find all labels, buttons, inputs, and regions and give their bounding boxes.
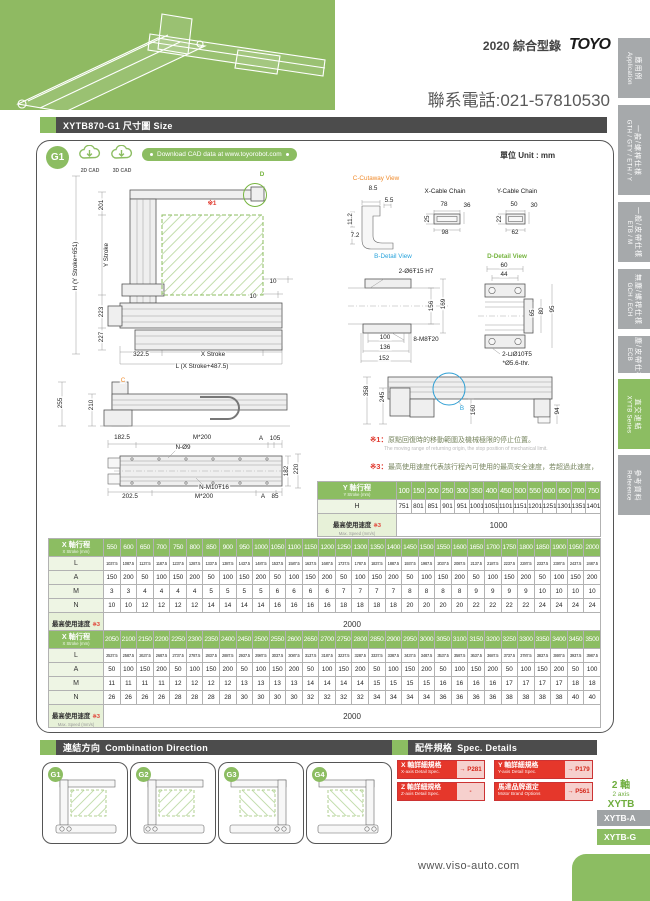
table-cell: 3187.5 xyxy=(319,649,336,663)
column-header: 1550 xyxy=(435,539,452,557)
table-cell: 10 xyxy=(551,585,568,599)
table-cell: 15 xyxy=(385,677,402,691)
table-head-sub: Y Stroke (mm) xyxy=(318,493,396,497)
table-cell: 22 xyxy=(484,599,501,613)
spec-link-y-axis[interactable]: Y 軸詳細規格 Y-axis Detail Spec. → P179 xyxy=(494,760,593,779)
table-cell: 801 xyxy=(411,500,426,514)
table-cell: 200 xyxy=(484,663,501,677)
website-url: www.viso-auto.com xyxy=(418,860,520,872)
table-cell: 18 xyxy=(335,599,352,613)
table-head-sub: X Stroke (mm) xyxy=(49,642,103,646)
column-header: 2350 xyxy=(203,631,220,649)
dimension-label: 62 xyxy=(510,230,519,236)
dimension-label: 95 xyxy=(550,304,556,313)
dimension-label: 105 xyxy=(269,436,282,442)
dimension-label: 44 xyxy=(499,272,508,278)
tab-zh: 無塵/皮帶仕樣 xyxy=(633,336,643,373)
footnote-mark: ※3： xyxy=(370,462,388,471)
combination-option-g3[interactable]: G3 xyxy=(218,762,304,844)
footnote-mark: ※1： xyxy=(370,435,388,444)
tab-en: GTH / GTY / ETH / Y xyxy=(626,119,632,181)
combination-title-zh: 連結方向 xyxy=(63,741,100,754)
y-stroke-table: Y 軸行程Y Stroke (mm)1001502002503003504004… xyxy=(317,481,601,537)
detail-views-drawing: C-Cutaway View8.55.511.27.2X-Cable Chain… xyxy=(348,172,604,372)
table-cell: 8 xyxy=(451,585,468,599)
table-cell: 8 xyxy=(402,585,419,599)
table-cell: 16 xyxy=(468,677,485,691)
table-cell: 1737.5 xyxy=(335,557,352,571)
table-cell: 1537.5 xyxy=(269,557,286,571)
table-cell: 1401 xyxy=(586,500,601,514)
sidebar-tab-gth-gty-eth-y[interactable]: 一般/螺桿仕樣GTH / GTY / ETH / Y xyxy=(618,105,650,195)
combination-option-g2[interactable]: G2 xyxy=(130,762,216,844)
dimension-label: 2-Ø6Ŧ15 H7 xyxy=(398,269,435,275)
table-cell: 13 xyxy=(286,677,303,691)
table-cell: 16 xyxy=(484,677,501,691)
table-cell: 1237.5 xyxy=(170,557,187,571)
column-header: 3350 xyxy=(534,631,551,649)
table-cell: 100 xyxy=(584,663,601,677)
footnote-1: ※1：原點回復時的移動範圍及機械極限的停止位置。 The moving rang… xyxy=(370,429,604,453)
table-cell: 50 xyxy=(302,663,319,677)
column-header: 2650 xyxy=(302,631,319,649)
dimension-label: 245 xyxy=(380,391,386,404)
dimension-label: 2-⊔Ø10Ŧ5 xyxy=(501,352,533,358)
dimension-label: Y-Cable Chain xyxy=(496,189,538,195)
series-tab-xytb-a[interactable]: XYTB-A xyxy=(597,810,650,826)
contact-phone: 聯系電話:021-57810530 xyxy=(428,86,610,111)
sidebar-tab-reference[interactable]: 參考資料Reference xyxy=(618,455,650,515)
table-cell: 200 xyxy=(286,663,303,677)
column-header: 3300 xyxy=(518,631,535,649)
series-axis-block: 2 軸 2 axis XYTB xyxy=(598,776,644,810)
table-cell: 150 xyxy=(567,571,584,585)
table-cell: 851 xyxy=(426,500,441,514)
front-view-drawing: D※1H (Y Stroke+651)201Y Stroke2232271010… xyxy=(52,166,352,374)
table-cell: 32 xyxy=(335,691,352,705)
column-header: 2100 xyxy=(120,631,137,649)
g1-badge: G1 xyxy=(48,767,63,782)
dimension-label: 98 xyxy=(440,230,449,236)
dimension-label: 50 xyxy=(509,202,518,208)
tab-en: ETB / M xyxy=(626,220,632,244)
table-cell: 2937.5 xyxy=(236,649,253,663)
table-cell: 15 xyxy=(418,677,435,691)
column-header: 1500 xyxy=(418,539,435,557)
dimension-label: N-M10Ŧ16 xyxy=(198,485,230,491)
table-head-label: X 軸行程X Stroke (mm) xyxy=(49,631,104,649)
table-cell: 10 xyxy=(534,585,551,599)
table-cell: 1387.5 xyxy=(219,557,236,571)
table-cell: 1351 xyxy=(571,500,586,514)
table-cell: 2687.5 xyxy=(153,649,170,663)
table-cell: 2137.5 xyxy=(468,557,485,571)
table-cell: 12 xyxy=(186,599,203,613)
table-cell: 100 xyxy=(319,663,336,677)
column-header: 1050 xyxy=(269,539,286,557)
table-cell: 7 xyxy=(385,585,402,599)
tab-zh: 參考資料 xyxy=(633,469,643,501)
speed-label-en: Max. Speed (mm/s) xyxy=(318,532,396,536)
table-cell: 6 xyxy=(269,585,286,599)
tab-zh: 直交連結 xyxy=(633,398,643,430)
column-header: 1850 xyxy=(534,539,551,557)
table-cell: 17 xyxy=(551,677,568,691)
table-cell: 3437.5 xyxy=(402,649,419,663)
dimension-label: 5.5 xyxy=(384,198,395,204)
column-header: 1750 xyxy=(501,539,518,557)
dimension-label: 227 xyxy=(99,331,105,344)
table-cell: 1037.5 xyxy=(104,557,121,571)
table-cell: 2037.5 xyxy=(435,557,452,571)
table-cell: 8 xyxy=(418,585,435,599)
table-cell: 200 xyxy=(451,571,468,585)
table-cell: 20 xyxy=(402,599,419,613)
table-cell: 12 xyxy=(203,677,220,691)
column-header: 1000 xyxy=(253,539,270,557)
dimension-label: 94 xyxy=(555,406,561,415)
table-cell: 5 xyxy=(253,585,270,599)
column-header: 350 xyxy=(469,482,484,500)
dimension-label: X-Cable Chain xyxy=(424,189,467,195)
column-header: 3250 xyxy=(501,631,518,649)
dimension-label: 65 xyxy=(530,308,536,317)
table-cell: 5 xyxy=(236,585,253,599)
x-stroke-table-1: X 軸行程X Stroke (mm)5506006507007508008509… xyxy=(48,538,601,636)
table-cell: 150 xyxy=(468,663,485,677)
series-name: XYTB xyxy=(598,799,644,810)
table-cell: 50 xyxy=(170,663,187,677)
table-cell: 3 xyxy=(104,585,121,599)
dimension-label: 8.5 xyxy=(368,186,379,192)
table-cell: 22 xyxy=(518,599,535,613)
tab-en: Application xyxy=(626,52,632,85)
column-header: 3400 xyxy=(551,631,568,649)
table-cell: 14 xyxy=(352,677,369,691)
table-cell: 13 xyxy=(236,677,253,691)
spec-motor-page-ref: → P561 xyxy=(565,783,592,800)
table-cell: 28 xyxy=(203,691,220,705)
table-cell: 3487.5 xyxy=(418,649,435,663)
column-header: 1700 xyxy=(484,539,501,557)
table-cell: 28 xyxy=(186,691,203,705)
table-cell: 26 xyxy=(153,691,170,705)
column-header: 700 xyxy=(153,539,170,557)
table-cell: 150 xyxy=(236,571,253,585)
table-cell: 2837.5 xyxy=(203,649,220,663)
sidebar-tab-ecb[interactable]: 無塵/皮帶仕樣ECB xyxy=(618,336,650,373)
table-cell: 1051 xyxy=(484,500,499,514)
table-cell: 3387.5 xyxy=(385,649,402,663)
dimension-label: B xyxy=(459,406,465,412)
dimension-label: 30 xyxy=(529,203,538,209)
table-cell: 150 xyxy=(269,663,286,677)
dimension-label: M*200 xyxy=(192,435,212,441)
dimension-label: 169 xyxy=(441,298,447,311)
table-cell: 50 xyxy=(104,663,121,677)
dimension-label: X Stroke xyxy=(200,352,226,358)
dimension-label: ※1 xyxy=(207,201,218,207)
speed-label-en: Max. Speed (mm/s) xyxy=(49,723,103,727)
table-cell: 36 xyxy=(484,691,501,705)
column-header: 1400 xyxy=(385,539,402,557)
dimension-label: M*200 xyxy=(194,494,214,500)
sidebar-tab-etb-m[interactable]: 一般/皮帶仕樣ETB / M xyxy=(618,202,650,262)
table-cell: 100 xyxy=(120,663,137,677)
table-cell: 16 xyxy=(451,677,468,691)
spec-table: Y 軸行程Y Stroke (mm)1001502002503003504004… xyxy=(317,481,601,537)
table-cell: 38 xyxy=(534,691,551,705)
table-cell: 14 xyxy=(219,599,236,613)
speed-label: 最高使用速度※3Max. Speed (mm/s) xyxy=(49,705,104,728)
table-cell: 150 xyxy=(203,663,220,677)
table-cell: 6 xyxy=(286,585,303,599)
sidebar-tab-xytb-series[interactable]: 直交連結XYTB Series xyxy=(618,379,650,449)
table-cell: 200 xyxy=(418,663,435,677)
speed-footnote-mark: ※3 xyxy=(373,523,381,529)
tab-zh: 無塵/螺桿仕樣 xyxy=(633,274,643,325)
series-tab-xytb-g[interactable]: XYTB-G xyxy=(597,829,650,845)
column-header: 700 xyxy=(571,482,586,500)
tab-zh: 應用例 xyxy=(633,56,643,80)
dimension-label: B-Detail View xyxy=(373,254,413,260)
column-header: 2750 xyxy=(335,631,352,649)
table-cell: 200 xyxy=(120,571,137,585)
column-header: 1300 xyxy=(352,539,369,557)
tab-en: GCH / ECH xyxy=(626,282,632,316)
table-cell: 30 xyxy=(253,691,270,705)
table-cell: 2587.5 xyxy=(120,649,137,663)
column-header: 250 xyxy=(440,482,455,500)
table-cell: 2537.5 xyxy=(104,649,121,663)
dimension-label: 223 xyxy=(99,306,105,319)
spec-table: X 軸行程X Stroke (mm)2050210021502200225023… xyxy=(48,630,601,728)
column-header: 1650 xyxy=(468,539,485,557)
column-header: 1950 xyxy=(567,539,584,557)
dimension-label: 36 xyxy=(462,203,471,209)
spec-title-en: Spec. Details xyxy=(457,743,517,753)
edition-text: 2020 綜合型錄 xyxy=(483,37,561,54)
table-cell: 11 xyxy=(137,677,154,691)
combination-option-g1[interactable]: G1 xyxy=(42,762,128,844)
spec-link-motor-brand[interactable]: 馬達品牌選定 Motor Brand Options → P561 xyxy=(494,782,593,801)
table-cell: 12 xyxy=(186,677,203,691)
table-cell: 5 xyxy=(203,585,220,599)
table-cell: 9 xyxy=(468,585,485,599)
table-cell: 7 xyxy=(369,585,386,599)
dimension-label: D-Detail View xyxy=(486,254,528,260)
column-header: 100 xyxy=(397,482,412,500)
speed-footnote-mark: ※3 xyxy=(92,622,100,628)
table-cell: 17 xyxy=(518,677,535,691)
table-cell: 3837.5 xyxy=(534,649,551,663)
table-cell: 3887.5 xyxy=(551,649,568,663)
column-header: 800 xyxy=(186,539,203,557)
table-head-label: X 軸行程X Stroke (mm) xyxy=(49,539,104,557)
table-cell: 20 xyxy=(451,599,468,613)
table-cell: 3587.5 xyxy=(451,649,468,663)
column-header: 600 xyxy=(120,539,137,557)
table-cell: 18 xyxy=(352,599,369,613)
table-cell: 24 xyxy=(534,599,551,613)
table-cell: 9 xyxy=(501,585,518,599)
table-cell: 150 xyxy=(501,571,518,585)
column-header: 900 xyxy=(219,539,236,557)
table-cell: 3737.5 xyxy=(501,649,518,663)
table-cell: 200 xyxy=(219,663,236,677)
dimension-label: D xyxy=(259,172,266,178)
speed-value: 2000 xyxy=(104,705,601,728)
column-header: 3200 xyxy=(484,631,501,649)
table-cell: 200 xyxy=(186,571,203,585)
table-head-sub: X Stroke (mm) xyxy=(49,550,103,554)
cad-download-link[interactable]: Download CAD data at www.toyorobot.com xyxy=(142,148,297,161)
table-cell: 1101 xyxy=(498,500,513,514)
table-cell: 951 xyxy=(455,500,470,514)
table-cell: 17 xyxy=(501,677,518,691)
table-cell: 200 xyxy=(253,571,270,585)
column-header: 2000 xyxy=(584,539,601,557)
dimension-label: 7.2 xyxy=(350,233,361,239)
speed-label: 最高使用速度※3Max. Speed (mm/s) xyxy=(318,514,397,537)
table-cell: 200 xyxy=(319,571,336,585)
title-accent-square xyxy=(40,117,56,133)
table-cell: 13 xyxy=(269,677,286,691)
dimension-label: L (X Stroke+487.5) xyxy=(175,364,230,370)
table-cell: 2437.5 xyxy=(567,557,584,571)
table-cell: 15 xyxy=(402,677,419,691)
tab-zh: 一般/螺桿仕樣 xyxy=(633,125,643,176)
speed-value: 1000 xyxy=(397,514,601,537)
table-cell: 26 xyxy=(137,691,154,705)
spec-link-z-axis[interactable]: Z 軸詳細規格 Z-axis Detail Spec. - xyxy=(397,782,485,801)
table-cell: 11 xyxy=(104,677,121,691)
table-cell: 12 xyxy=(170,599,187,613)
x-stroke-table-2: X 軸行程X Stroke (mm)2050210021502200225023… xyxy=(48,630,601,728)
table-cell: 100 xyxy=(153,571,170,585)
table-cell: 12 xyxy=(153,599,170,613)
table-cell: 1187.5 xyxy=(153,557,170,571)
table-cell: 1787.5 xyxy=(352,557,369,571)
table-cell: 4 xyxy=(153,585,170,599)
table-cell: 200 xyxy=(551,663,568,677)
dimension-label: 25 xyxy=(425,214,431,223)
tab-en: XYTB Series xyxy=(626,395,632,433)
column-header: 300 xyxy=(455,482,470,500)
table-cell: 12 xyxy=(170,677,187,691)
table-cell: 200 xyxy=(385,571,402,585)
table-cell: 36 xyxy=(435,691,452,705)
dimension-label: C xyxy=(120,378,127,384)
combination-accent-square xyxy=(40,740,56,755)
table-cell: 24 xyxy=(584,599,601,613)
column-header: 3100 xyxy=(451,631,468,649)
table-cell: 1337.5 xyxy=(203,557,220,571)
table-cell: 2987.5 xyxy=(253,649,270,663)
column-header: 450 xyxy=(498,482,513,500)
table-cell: 28 xyxy=(170,691,187,705)
column-header: 1200 xyxy=(319,539,336,557)
table-cell: 150 xyxy=(369,571,386,585)
tab-en: ECB xyxy=(626,348,632,361)
column-header: 2400 xyxy=(219,631,236,649)
table-cell: 751 xyxy=(397,500,412,514)
tab-en: Reference xyxy=(626,470,632,500)
column-header: 400 xyxy=(484,482,499,500)
row-label: H xyxy=(318,500,397,514)
table-cell: 100 xyxy=(219,571,236,585)
column-header: 2800 xyxy=(352,631,369,649)
table-cell: 3987.5 xyxy=(584,649,601,663)
spec-y-page-ref: → P179 xyxy=(565,761,592,778)
table-cell: 22 xyxy=(501,599,518,613)
table-cell: 30 xyxy=(236,691,253,705)
table-cell: 50 xyxy=(435,663,452,677)
unit-label: 單位 Unit : mm xyxy=(500,150,555,161)
cloud-download-icon xyxy=(110,145,134,167)
row-label: L xyxy=(49,557,104,571)
column-header: 150 xyxy=(411,482,426,500)
combination-option-g4[interactable]: G4 xyxy=(306,762,392,844)
table-head-label: Y 軸行程Y Stroke (mm) xyxy=(318,482,397,500)
table-cell: 100 xyxy=(352,571,369,585)
brand-logo: TOYO xyxy=(569,36,610,54)
dimension-label: 22 xyxy=(497,214,503,223)
spec-link-x-axis[interactable]: X 軸詳細規格 X-axis Detail Spec. → P281 xyxy=(397,760,485,779)
table-cell: 20 xyxy=(435,599,452,613)
dimension-label: 85 xyxy=(270,494,279,500)
table-cell: 32 xyxy=(319,691,336,705)
column-header: 1900 xyxy=(551,539,568,557)
dimension-label: 11.2 xyxy=(348,212,354,226)
table-cell: 2087.5 xyxy=(451,557,468,571)
table-cell: 50 xyxy=(567,663,584,677)
table-cell: 50 xyxy=(203,571,220,585)
table-cell: 4 xyxy=(186,585,203,599)
column-header: 2950 xyxy=(402,631,419,649)
dimension-label: 78 xyxy=(439,202,448,208)
dimension-label: Y Stroke xyxy=(104,242,110,268)
table-cell: 18 xyxy=(567,677,584,691)
spec-title-bar: 配件規格 Spec. Details xyxy=(408,740,597,755)
table-cell: 17 xyxy=(534,677,551,691)
table-cell: 2487.5 xyxy=(584,557,601,571)
g4-badge: G4 xyxy=(312,767,327,782)
table-cell: 3137.5 xyxy=(302,649,319,663)
column-header: 3500 xyxy=(584,631,601,649)
dimension-label: C-Cutaway View xyxy=(352,176,400,182)
table-cell: 20 xyxy=(418,599,435,613)
table-cell: 4 xyxy=(170,585,187,599)
dimension-label: 100 xyxy=(379,335,392,341)
table-cell: 1987.5 xyxy=(418,557,435,571)
table-cell: 38 xyxy=(518,691,535,705)
table-cell: 34 xyxy=(369,691,386,705)
table-cell: 16 xyxy=(269,599,286,613)
hero-product-illustration xyxy=(0,0,335,110)
table-cell: 3687.5 xyxy=(484,649,501,663)
table-cell: 24 xyxy=(551,599,568,613)
table-cell: 50 xyxy=(501,663,518,677)
table-cell: 14 xyxy=(253,599,270,613)
column-header: 2150 xyxy=(137,631,154,649)
table-cell: 32 xyxy=(352,691,369,705)
column-header: 2500 xyxy=(253,631,270,649)
sidebar-tab-application[interactable]: 應用例Application xyxy=(618,38,650,98)
spec-title-zh: 配件規格 xyxy=(415,741,452,754)
spec-z-page-ref: - xyxy=(457,783,484,800)
sidebar-tab-gch-ech[interactable]: 無塵/螺桿仕樣GCH / ECH xyxy=(618,269,650,329)
